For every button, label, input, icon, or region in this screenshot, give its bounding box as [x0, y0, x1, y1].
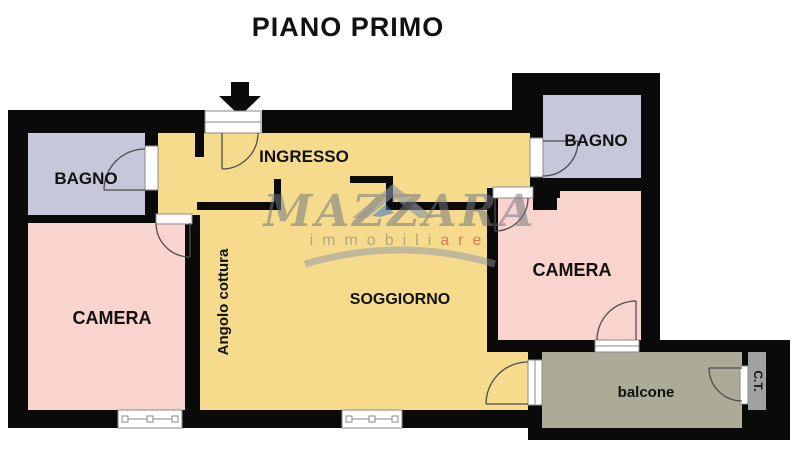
- wall-segment: [528, 340, 542, 362]
- room-area-living: [158, 133, 530, 410]
- watermark-subtitle-gray: immobili: [310, 232, 441, 249]
- window-hinge: [369, 416, 375, 422]
- wall-segment: [512, 73, 532, 133]
- label-balcone: balcone: [618, 384, 675, 401]
- wall-segment: [641, 73, 660, 352]
- wall-segment: [742, 352, 748, 366]
- bagno-right-door-frame: [530, 138, 543, 177]
- window-hinge: [346, 416, 352, 422]
- wall-segment: [742, 402, 748, 428]
- label-angolo-cottura: Angolo cottura: [215, 248, 232, 355]
- watermark-name: MAZZARA: [262, 186, 537, 237]
- wall-segment: [8, 410, 542, 428]
- wall-segment: [530, 95, 543, 140]
- label-bagno-left: BAGNO: [54, 169, 117, 188]
- label-ingresso: INGRESSO: [259, 147, 349, 166]
- bagno-left-door-frame: [145, 146, 158, 190]
- window-hinge: [392, 416, 398, 422]
- wall-segment: [195, 133, 204, 157]
- window-soggiorno: [342, 410, 402, 428]
- label-camera-left: CAMERA: [73, 308, 152, 328]
- wall-segment: [8, 110, 28, 428]
- window-camera-left: [118, 410, 182, 428]
- window-hinge: [172, 416, 178, 422]
- page-title: PIANO PRIMO: [252, 12, 445, 42]
- ct-door-frame: [740, 366, 748, 404]
- label-bagno-right: BAGNO: [564, 131, 627, 150]
- floor-plan-canvas: PIANO PRIMO: [0, 0, 800, 450]
- label-ct: C.T.: [751, 370, 765, 391]
- floor-plan-page: PIANO PRIMO: [0, 0, 800, 450]
- watermark-subtitle: immobiliare: [310, 232, 491, 249]
- wall-segment: [262, 110, 532, 133]
- label-soggiorno: SOGGIORNO: [350, 291, 450, 308]
- wall-segment: [748, 410, 790, 428]
- watermark-subtitle-red: are: [440, 232, 490, 249]
- label-camera-right: CAMERA: [533, 260, 612, 280]
- camera-left-door-frame: [156, 214, 192, 224]
- wall-segment: [8, 110, 205, 133]
- window-hinge: [147, 416, 153, 422]
- wall-segment: [8, 215, 158, 223]
- wall-segment: [528, 428, 790, 440]
- wall-segment: [185, 215, 200, 410]
- window-hinge: [122, 416, 128, 422]
- wall-segment: [512, 73, 660, 95]
